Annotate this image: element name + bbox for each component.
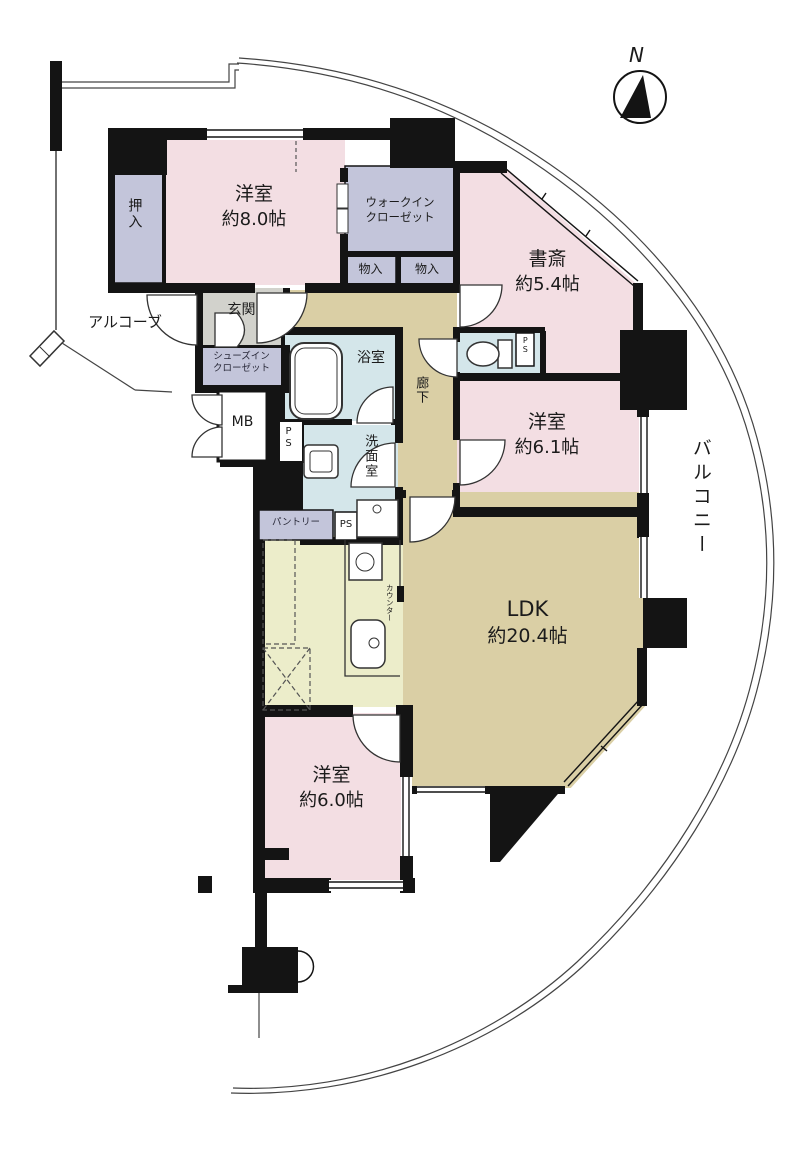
ldk-name: LDK [420, 598, 635, 621]
boundary-hatch-mark [30, 331, 64, 366]
washroom-label: 洗面室 [362, 434, 376, 479]
monoire-left-label: 物入 [345, 263, 396, 276]
bedroom8-name: 洋室 [163, 184, 345, 205]
ps-washroom-label: PS [283, 426, 294, 450]
window-ldk-bottom [417, 786, 485, 794]
bedroom61-name: 洋室 [457, 412, 637, 433]
window-bedroom6-right [401, 777, 412, 856]
window-ldk-right [639, 537, 649, 598]
north-boundary-inner [58, 64, 239, 82]
kitchen-sink [351, 620, 385, 668]
mb-door-lower [192, 427, 222, 457]
sic-label-line2: クローゼット [200, 364, 283, 374]
window-bedroom6-bottom [329, 880, 403, 891]
washing-machine-drain [373, 505, 381, 513]
study-size: 約5.4帖 [460, 275, 635, 295]
wic-label-line1: ウォークイン [347, 196, 453, 209]
column-semicircle [298, 951, 313, 982]
sic-label-line1: シューズイン [200, 352, 283, 362]
compass-north-label: N [629, 44, 644, 66]
toilet-bowl [467, 342, 499, 366]
corridor-label: 廊下 [413, 376, 427, 404]
pantry-label: パントリー [259, 518, 333, 528]
alcove-line-diagonal [62, 343, 135, 390]
compass-icon [614, 71, 666, 123]
north-boundary-outer [58, 70, 239, 88]
mb-label: MB [218, 415, 267, 430]
bathroom-label: 浴室 [345, 351, 397, 366]
alcove-label: アルコーブ [60, 314, 190, 331]
genkan-label: 玄関 [198, 303, 285, 318]
bathtub-inner [295, 348, 337, 414]
study-name: 書斎 [460, 249, 635, 270]
bedroom6-size: 約6.0帖 [263, 791, 400, 811]
ps-toilet-label: PS [520, 336, 529, 354]
bedroom6-name: 洋室 [263, 765, 400, 786]
toilet-tank [498, 340, 512, 368]
alcove-line-horizontal [135, 390, 172, 392]
bedroom61-size: 約6.1帖 [457, 438, 637, 458]
oshiire-label: 押入 [126, 198, 141, 230]
wic-label-line2: クローゼット [347, 211, 453, 224]
monoire-right-label: 物入 [399, 263, 455, 276]
stove-burner [356, 553, 374, 571]
hall-floor [283, 290, 457, 333]
floor-plan: N 洋室 約8.0帖 押入 ウォークイン クローゼット 物入 物入 書斎 約5.… [0, 0, 800, 1151]
vanity-basin [310, 451, 332, 472]
ps-pantry-label: PS [335, 519, 357, 530]
window-bedroom61-right [639, 417, 649, 493]
sink-faucet [369, 638, 379, 648]
ldk-size: 約20.4帖 [420, 626, 635, 647]
counter-label: カウンター [385, 584, 393, 622]
bedroom8-size: 約8.0帖 [163, 210, 345, 230]
floor-plan-drawing [0, 0, 800, 1151]
window-bedroom8-top [207, 128, 303, 140]
balcony-label: バルコニー [690, 438, 711, 558]
